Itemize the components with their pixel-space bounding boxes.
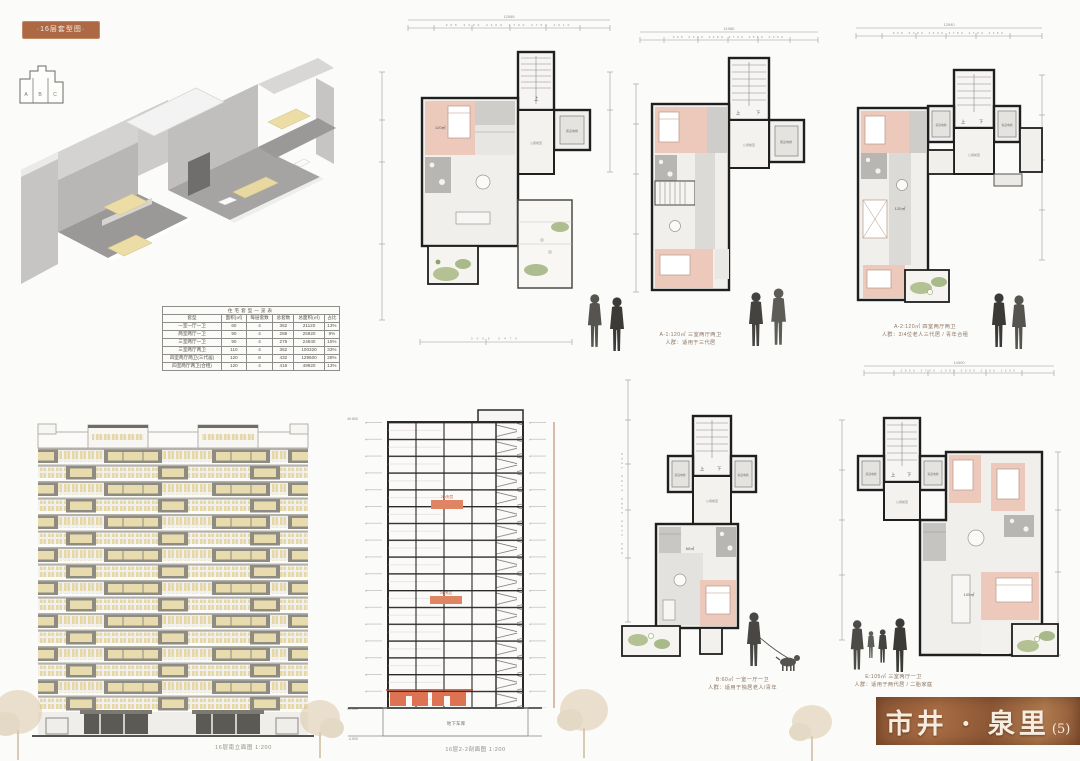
dimension-lines xyxy=(625,380,631,622)
figures-elderly-couple xyxy=(583,290,633,352)
mezzanine-2-label: 2m夹层 xyxy=(440,590,453,595)
figures-couple xyxy=(745,286,793,352)
unit-table-rows: 一室一厅一卫6043522112013%两室两厅一卫904288259208%三… xyxy=(163,322,340,370)
core: 上 下 货运电梯 客运电梯 公用前室 xyxy=(858,418,946,520)
dim-segments: 905 3300 2400 2700 2700 2250 xyxy=(893,31,1006,35)
title-banner: 市井 · 泉里 (5) xyxy=(876,697,1080,745)
axonometric-cutaway xyxy=(18,52,342,310)
section-caption: 16层2-2剖面图 1:200 xyxy=(428,745,523,753)
table-row: 四室两厅两卫(合租)12044164992013% xyxy=(163,362,340,370)
elevator-passenger-label: 客运电梯 xyxy=(927,472,938,476)
lobby-label: 公用前室 xyxy=(968,152,980,157)
dim-segments-bottom: 3005 6470 xyxy=(471,337,521,341)
table-row: 三室两厅两卫110435210032033% xyxy=(163,346,340,354)
lobby-label: 公用前室 xyxy=(896,499,908,504)
area-label: 105㎡ xyxy=(964,591,975,597)
floor-plan-a3: 12940 905 3300 2400 2700 2700 2250 上 下 货… xyxy=(846,20,1048,318)
caption-a1: A-1:120㎡ 三室两厅两卫 人群：适用于三代居 xyxy=(628,331,753,348)
tree-icon xyxy=(786,702,838,761)
caption-a1-line2: 人群：适用于三代居 xyxy=(628,339,753,347)
dim-segments: 2850 2700 1500 3050 2700 1500 xyxy=(901,369,1018,373)
elevator-passenger-label: 客运电梯 xyxy=(737,473,748,477)
stair-up-label: 上 xyxy=(534,95,539,101)
area-label: 120㎡ xyxy=(895,205,906,211)
elevator-passenger-label: 客运电梯 xyxy=(566,128,578,133)
unit-table-header-cell: 套型 xyxy=(163,314,222,322)
lobby-label: 公用前室 xyxy=(530,140,542,145)
tree-icon xyxy=(0,686,46,761)
parapet xyxy=(38,432,308,448)
caption-b-line2: 人群：适用于独居老人/青年 xyxy=(680,684,805,692)
area-label: 60㎡ xyxy=(686,545,694,551)
caption-a1-line1: A-1:120㎡ 三室两厅两卫 xyxy=(628,331,753,339)
dim-segments: 905 3300 2400 2700 2550 2050 xyxy=(673,35,786,39)
tree-icon xyxy=(554,686,614,760)
sheet-number: (5) xyxy=(1052,722,1070,745)
area-label: 120㎡ xyxy=(435,124,446,130)
section-drawing: 49.800 ±0.000 -4.500 2m夹层 2m夹层 xyxy=(328,408,562,746)
level-ticks-left xyxy=(362,422,384,708)
elevator-freight-label: 货运电梯 xyxy=(674,473,685,477)
lobby-label: 公用前室 xyxy=(706,498,718,503)
unit: 60㎡ xyxy=(622,524,738,656)
elevator-freight-label: 货运电梯 xyxy=(865,472,876,476)
table-row: 四室两厅两卫(三代居)120843212960028% xyxy=(163,354,340,362)
dim-segments-left: 850 3150 2400 2700 7200 xyxy=(620,450,624,554)
basement-label: 地下车库 xyxy=(447,720,466,727)
dim-total: 12940 xyxy=(943,22,955,27)
dog xyxy=(776,655,800,671)
unit-table: 住宅套型一览表 套型面积(㎡)每层套数总套数总面积(㎡)占比 一室一厅一卫604… xyxy=(162,306,340,371)
core: 上 下 货运电梯 客运电梯 公用前室 xyxy=(668,416,756,524)
elevator-passenger-label: 客运电梯 xyxy=(780,139,792,144)
floor-plan-a2: 11060 905 3300 2400 2700 2550 2050 上 下 货… xyxy=(632,24,824,324)
dim-total: 14300 xyxy=(953,360,965,365)
caption-a2-line2: 人群：3/4位老人三代居 / 青年合租 xyxy=(850,331,1000,339)
figures-family xyxy=(848,618,912,674)
section-tower xyxy=(388,410,523,708)
dim-total: 11060 xyxy=(724,26,736,31)
table-row: 两室两厅一卫904288259208% xyxy=(163,330,340,338)
figures-walking-pair xyxy=(983,291,1043,349)
unit-table-header-cell: 总套数 xyxy=(273,314,294,322)
facade-floors xyxy=(38,448,308,712)
dim-total: 12065 xyxy=(503,14,515,19)
corner-tag: ·16层套型图· xyxy=(22,21,100,39)
dog-leash xyxy=(758,636,788,658)
table-row: 三室两厅一卫9042762484015% xyxy=(163,338,340,346)
project-title: 市井 · 泉里 xyxy=(886,702,1050,741)
caption-b-line1: B:60㎡ 一室一厅一卫 xyxy=(680,676,805,684)
stair-up-label: 上 xyxy=(736,109,740,115)
unit-table-header-cell: 每层套数 xyxy=(246,314,273,322)
level-top-label: 49.800 xyxy=(347,417,358,421)
unit-table-header-cell: 占比 xyxy=(324,314,339,322)
level-ticks-right xyxy=(526,422,548,708)
stair-up-label: 上 xyxy=(961,118,965,124)
elevator-passenger-label: 客运电梯 xyxy=(1001,123,1012,127)
mezzanine-1-label: 2m夹层 xyxy=(441,494,454,499)
unit-table-headers: 套型面积(㎡)每层套数总套数总面积(㎡)占比 xyxy=(163,314,340,322)
caption-a2-line1: A-2:120㎡ 四室两厅两卫 xyxy=(850,323,1000,331)
dim-segments: 905 3300 2400 2700 2750 2010 xyxy=(446,23,573,27)
stair-up-label: 上 xyxy=(700,465,704,471)
figure-dog-walker xyxy=(742,610,806,672)
floor-plan-a1: 12065 905 3300 2400 2700 2750 2010 3005 … xyxy=(368,12,614,352)
elevation-caption: 16层南立面图 1:200 xyxy=(196,743,291,751)
caption-b: B:60㎡ 一室一厅一卫 人群：适用于独居老人/青年 xyxy=(680,676,805,693)
unit-table-header-cell: 面积(㎡) xyxy=(222,314,247,322)
unit-table-header-cell: 总面积(㎡) xyxy=(294,314,324,322)
level-base-label: -4.500 xyxy=(348,737,358,741)
caption-a2: A-2:120㎡ 四室两厅两卫 人群：3/4位老人三代居 / 青年合租 xyxy=(850,323,1000,340)
elevator-freight-label: 货运电梯 xyxy=(935,123,946,127)
presentation-board: ·16层套型图· A B C xyxy=(0,0,1080,761)
caption-e-line2: 人群：适用于两代居 / 二胎家庭 xyxy=(826,681,961,689)
south-elevation xyxy=(32,420,314,742)
stair-up-label: 上 xyxy=(891,471,895,477)
caption-e: E:105㎡ 三室两厅一卫 人群：适用于两代居 / 二胎家庭 xyxy=(826,673,961,690)
facade-base xyxy=(32,710,314,736)
tree-icon xyxy=(294,698,346,760)
unit-table-title: 住宅套型一览表 xyxy=(163,307,340,315)
lobby-label: 公用前室 xyxy=(743,142,755,147)
table-row: 一室一厅一卫6043522112013% xyxy=(163,322,340,330)
caption-e-line1: E:105㎡ 三室两厅一卫 xyxy=(826,673,961,681)
unit xyxy=(652,104,729,290)
